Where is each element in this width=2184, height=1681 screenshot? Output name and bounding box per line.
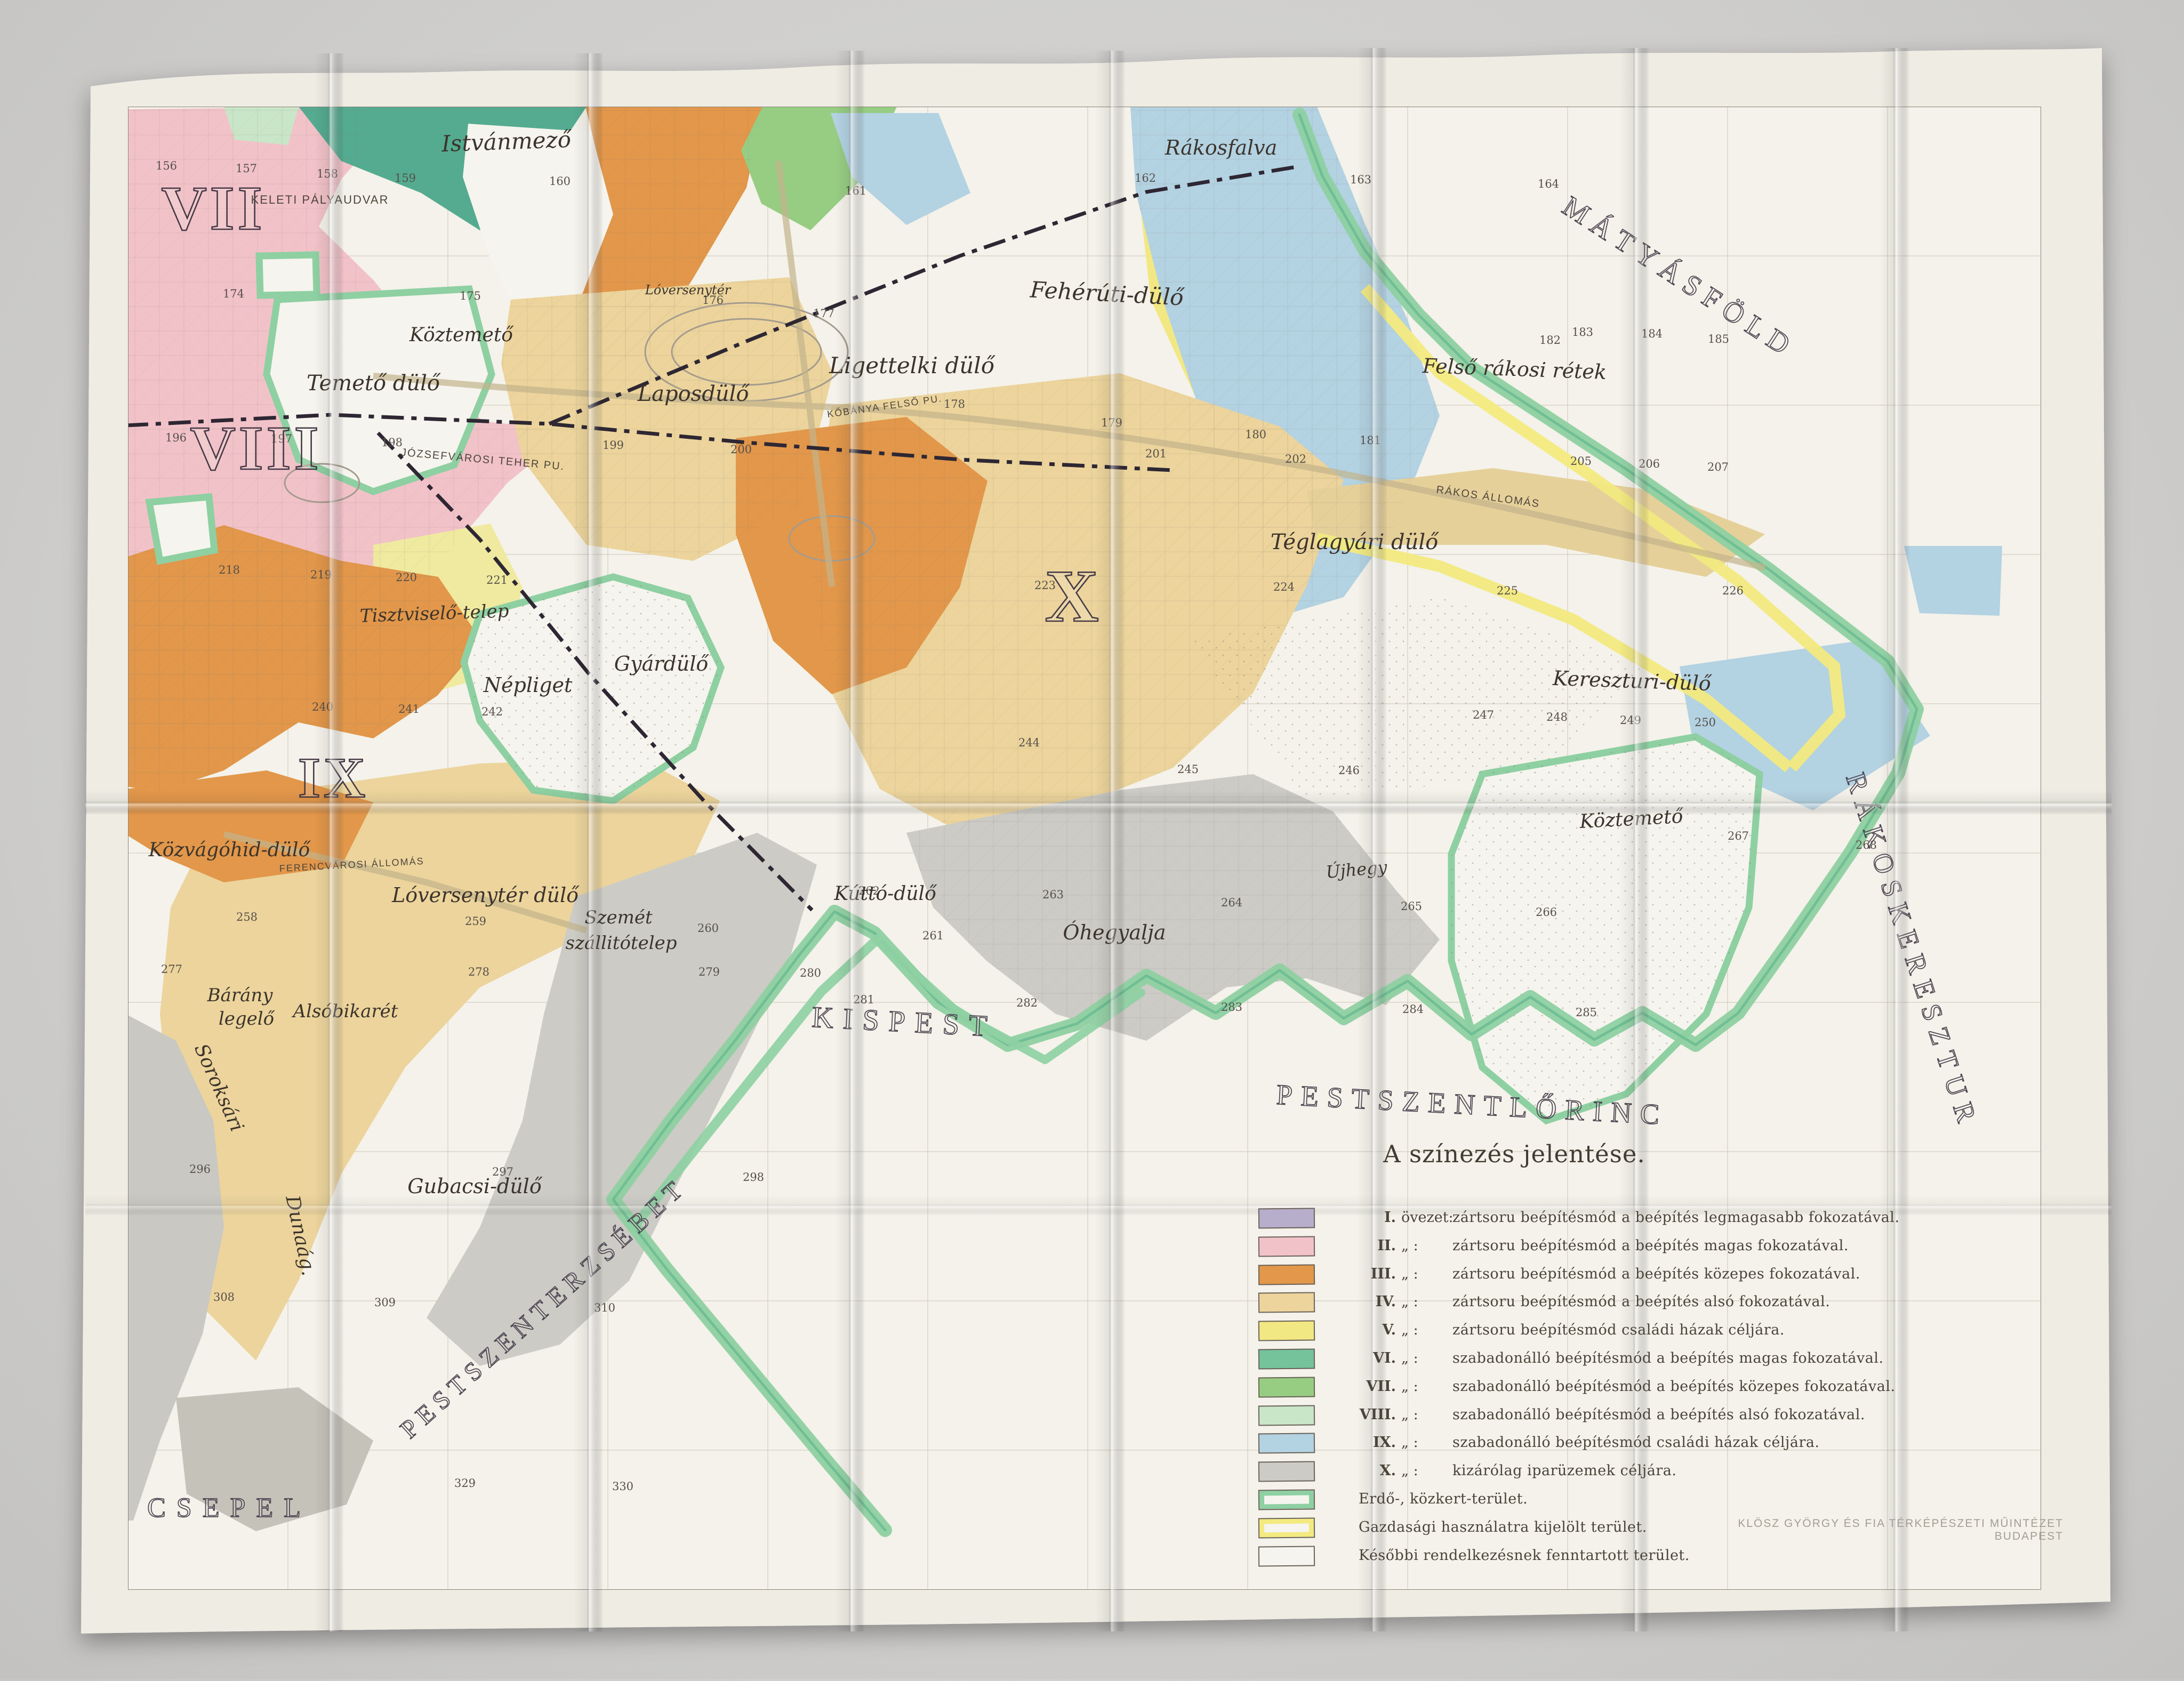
zone-blue-right-small	[1904, 546, 2002, 616]
section-number-218: 218	[219, 564, 240, 576]
section-number-284: 284	[1402, 1003, 1424, 1016]
map-svg: 1561571581591601611621631641741751761771…	[0, 0, 2184, 1679]
section-number-245: 245	[1177, 763, 1199, 776]
section-number-178: 178	[944, 398, 965, 411]
section-number-202: 202	[1285, 453, 1306, 465]
section-number-250: 250	[1695, 716, 1716, 729]
section-number-280: 280	[800, 967, 821, 979]
section-number-330: 330	[612, 1480, 633, 1493]
section-number-241: 241	[398, 703, 420, 715]
map-label-gy-rd-l: Gyárdülő	[614, 652, 710, 675]
map-label-l-versenyt-r-d-l: Lóversenytér dülő	[391, 883, 580, 907]
map-label-k-zv-g-hid-d-l: Közvágóhid-dülő	[148, 839, 311, 861]
section-number-242: 242	[481, 705, 503, 718]
district-label-x: X	[1045, 555, 1098, 638]
section-number-258: 258	[236, 911, 258, 923]
section-number-260: 260	[697, 922, 719, 935]
section-number-278: 278	[468, 966, 489, 978]
section-number-298: 298	[743, 1171, 764, 1184]
section-number-160: 160	[549, 175, 571, 188]
section-number-205: 205	[1570, 455, 1592, 468]
section-number-264: 264	[1221, 896, 1242, 909]
section-number-185: 185	[1708, 333, 1729, 345]
section-number-183: 183	[1572, 326, 1593, 339]
section-number-182: 182	[1539, 334, 1561, 347]
section-number-309: 309	[374, 1296, 396, 1309]
map-content: 1561571581591601611621631641741751761771…	[126, 107, 2041, 1590]
map-label-legel: legelő	[219, 1008, 275, 1029]
district-label-vii: VII	[161, 173, 265, 243]
map-label-l-versenyt-r: Lóversenytér	[645, 283, 732, 297]
map-label-csepel: CSEPEL	[147, 1493, 311, 1523]
map-label-t-glagy-ri-d-l: Téglagyári dülő	[1271, 530, 1439, 554]
section-number-282: 282	[1016, 996, 1038, 1009]
section-number-180: 180	[1245, 428, 1266, 441]
section-number-285: 285	[1576, 1006, 1597, 1019]
section-number-220: 220	[396, 571, 417, 584]
section-number-308: 308	[213, 1291, 235, 1304]
map-label-als-bikar-t: Alsóbikarét	[292, 1001, 398, 1022]
photographed-map-sheet: 1561571581591601611621631641741751761771…	[0, 0, 2184, 1679]
section-number-263: 263	[1042, 888, 1064, 901]
section-number-175: 175	[460, 289, 481, 302]
map-label-r-kosfalva: Rákosfalva	[1165, 136, 1278, 159]
section-number-296: 296	[189, 1163, 211, 1176]
map-label-b-r-ny: Bárány	[207, 985, 274, 1006]
section-number-248: 248	[1546, 711, 1568, 723]
map-label-laposd-l: Laposdülő	[637, 382, 750, 406]
section-number-267: 267	[1728, 830, 1749, 842]
map-label-istv-nmez: Istvánmező	[440, 126, 573, 157]
district-label-viii: VIII	[190, 413, 322, 483]
section-number-244: 244	[1018, 736, 1040, 749]
section-number-279: 279	[698, 966, 720, 978]
map-label-k-ztemet: Köztemető	[409, 324, 514, 346]
park-tisza-kalman-ter	[149, 497, 214, 561]
section-number-246: 246	[1338, 764, 1360, 777]
section-number-247: 247	[1473, 709, 1494, 721]
section-number-261: 261	[922, 929, 944, 942]
section-number-224: 224	[1273, 581, 1295, 593]
section-number-162: 162	[1135, 172, 1156, 184]
section-number-225: 225	[1497, 584, 1518, 597]
section-number-277: 277	[161, 963, 182, 976]
section-number-207: 207	[1707, 461, 1729, 473]
section-number-201: 201	[1145, 447, 1167, 460]
section-number-196: 196	[165, 431, 187, 444]
section-number-198: 198	[381, 436, 403, 449]
section-number-177: 177	[813, 307, 834, 320]
section-number-259: 259	[465, 915, 486, 928]
section-number-174: 174	[223, 287, 244, 300]
park-small-square	[259, 255, 317, 295]
section-number-199: 199	[603, 439, 624, 452]
section-number-265: 265	[1401, 900, 1422, 913]
section-number-283: 283	[1221, 1001, 1242, 1014]
section-number-226: 226	[1722, 584, 1744, 597]
section-number-266: 266	[1536, 906, 1557, 919]
section-number-200: 200	[730, 443, 752, 456]
section-number-329: 329	[454, 1477, 476, 1490]
section-number-156: 156	[156, 159, 177, 172]
map-label-n-pliget: Népliget	[483, 673, 573, 697]
section-number-159: 159	[395, 172, 416, 184]
section-number-221: 221	[486, 574, 508, 586]
section-number-164: 164	[1538, 178, 1559, 190]
